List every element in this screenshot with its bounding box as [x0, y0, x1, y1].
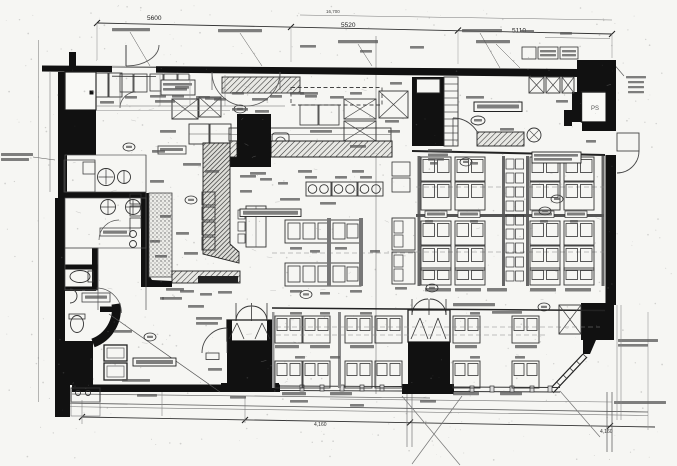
- svg-text:4,160: 4,160: [600, 429, 613, 435]
- svg-text:5520: 5520: [341, 22, 356, 29]
- svg-text:PS: PS: [591, 106, 599, 112]
- svg-text:4,160: 4,160: [314, 422, 327, 428]
- svg-text:16,700: 16,700: [326, 9, 340, 14]
- svg-text:5600: 5600: [147, 15, 162, 22]
